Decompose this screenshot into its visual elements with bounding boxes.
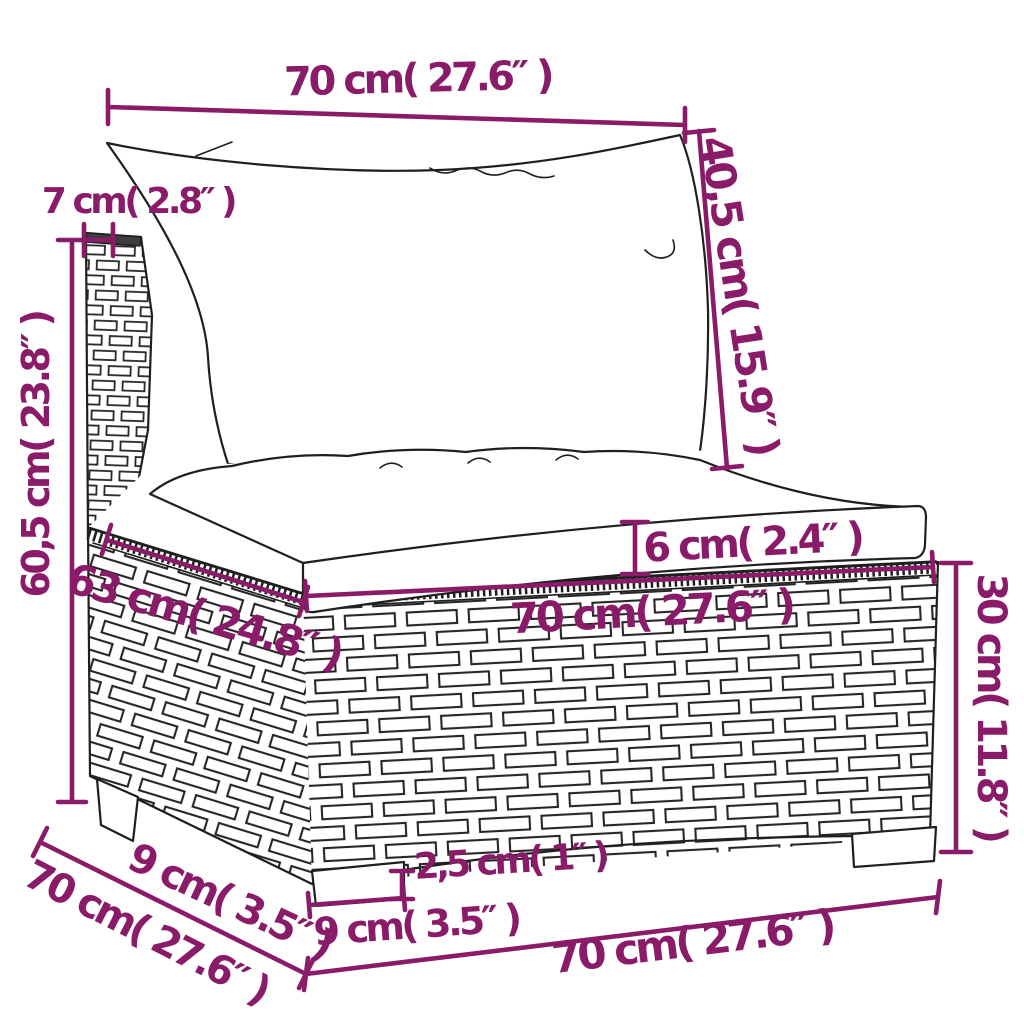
foot-right bbox=[852, 827, 936, 867]
dim-back-width-label: 70 cm( 27.6″ ) bbox=[284, 53, 552, 106]
dim-base-height: 30 cm( 11.8″ ) bbox=[941, 563, 1014, 852]
sofa-dimension-drawing: 70 cm( 27.6″ ) 40,5 cm( 15.9″ ) 7 cm( 2.… bbox=[0, 0, 1024, 1024]
dim-total-height: 60,5 cm( 23.8″ ) bbox=[14, 240, 86, 802]
dim-back-width: 70 cm( 27.6″ ) bbox=[108, 53, 685, 142]
dim-base-height-line bbox=[941, 563, 971, 852]
dimension-diagram: 70 cm( 27.6″ ) 40,5 cm( 15.9″ ) 7 cm( 2.… bbox=[0, 0, 1024, 1024]
dim-frame-thickness-label: 7 cm( 2.8″ ) bbox=[42, 181, 235, 222]
dim-total-height-line bbox=[58, 240, 86, 802]
dim-base-width-label: 70 cm( 27.6″ ) bbox=[549, 900, 836, 983]
back-cushion-wrinkle-left bbox=[196, 142, 232, 156]
dim-total-height-label: 60,5 cm( 23.8″ ) bbox=[14, 311, 58, 597]
dim-base-height-label: 30 cm( 11.8″ ) bbox=[968, 574, 1014, 841]
